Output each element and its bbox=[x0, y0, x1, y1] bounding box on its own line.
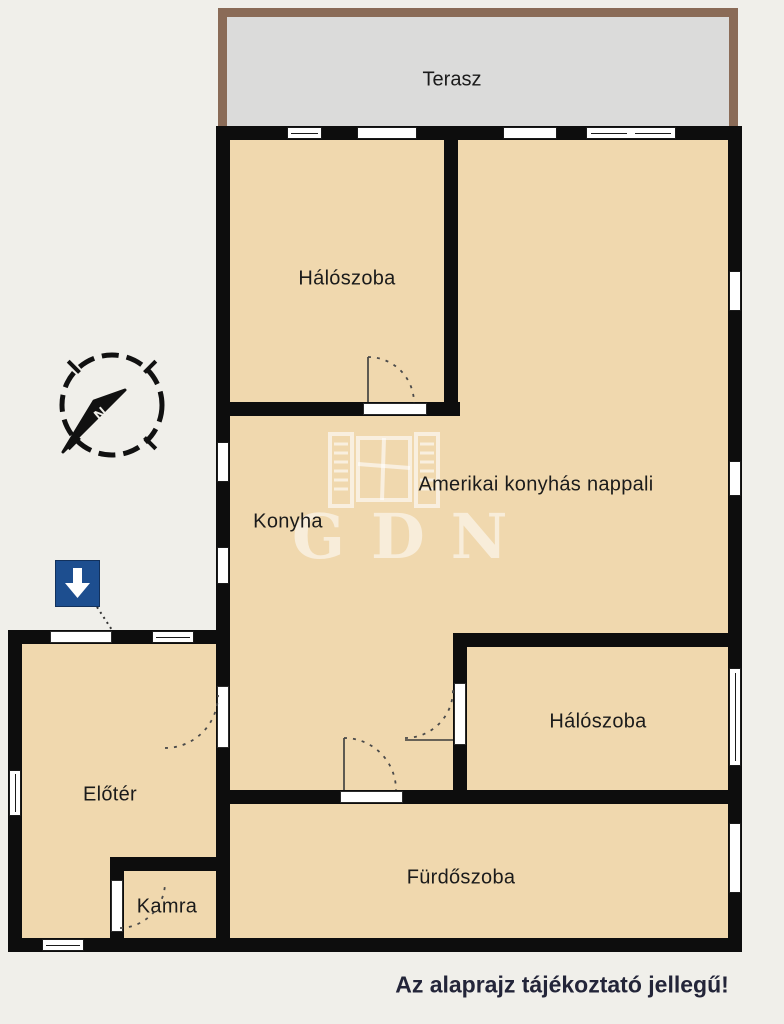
room-label-bedroom-right: Hálószoba bbox=[549, 711, 646, 734]
floor-plan-canvas: N GDN Terasz Hálószoba Amerikai konyhás … bbox=[0, 0, 784, 1024]
door-leaves bbox=[344, 357, 453, 790]
disclaimer-text: Az alaprajz tájékoztató jellegű! bbox=[395, 972, 729, 999]
entrance-direction-dotted-line bbox=[97, 607, 112, 630]
room-label-kitchen: Konyha bbox=[253, 511, 323, 534]
room-label-hallway: Előtér bbox=[83, 784, 137, 807]
room-label-pantry: Kamra bbox=[137, 896, 197, 919]
watermark-text: GDN bbox=[292, 506, 533, 568]
entrance-arrow-icon bbox=[55, 560, 100, 607]
room-label-bedroom-top: Hálószoba bbox=[298, 268, 395, 291]
terrace-label: Terasz bbox=[423, 69, 482, 92]
compass-icon: N bbox=[62, 355, 162, 455]
room-label-living-room: Amerikai konyhás nappali bbox=[418, 474, 653, 497]
room-label-bathroom: Fürdőszoba bbox=[407, 867, 516, 890]
